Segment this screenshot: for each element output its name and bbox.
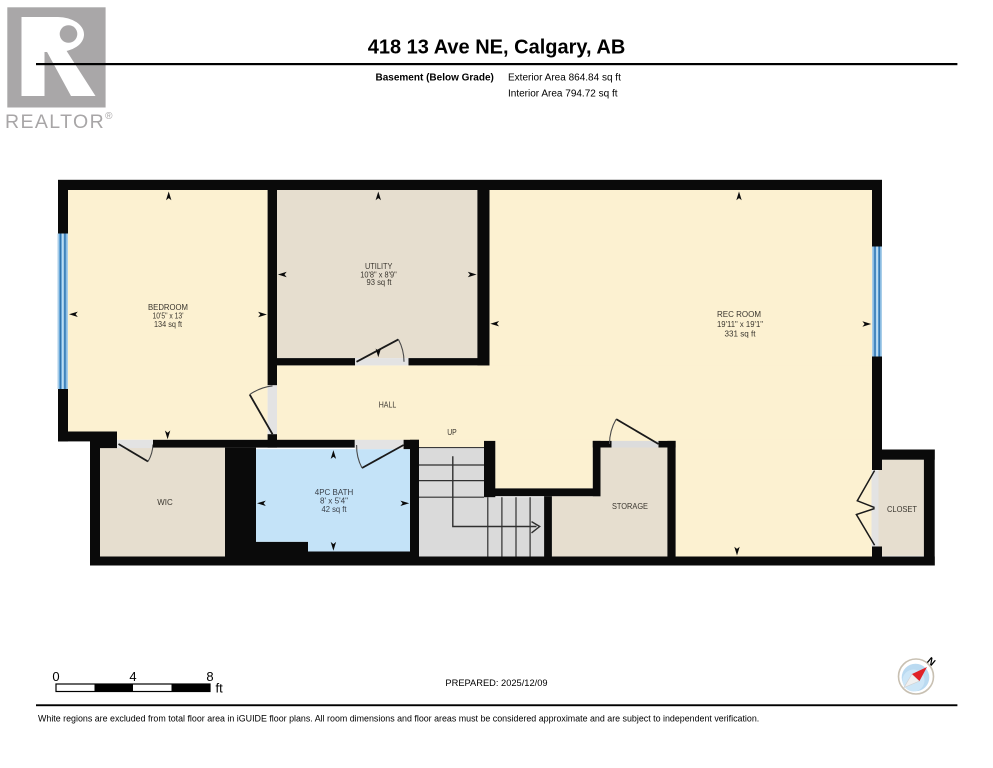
svg-text:HALL: HALL bbox=[379, 401, 397, 410]
svg-text:REC ROOM: REC ROOM bbox=[717, 309, 761, 319]
svg-text:331 sq ft: 331 sq ft bbox=[725, 330, 757, 339]
svg-text:19'11" x 19'1": 19'11" x 19'1" bbox=[717, 320, 763, 329]
svg-text:134 sq ft: 134 sq ft bbox=[154, 320, 183, 329]
svg-text:8: 8 bbox=[206, 669, 213, 684]
svg-text:Basement (Below Grade): Basement (Below Grade) bbox=[376, 73, 494, 84]
svg-text:UP: UP bbox=[447, 428, 457, 437]
svg-text:42 sq ft: 42 sq ft bbox=[322, 505, 348, 514]
svg-text:Interior Area 794.72 sq ft: Interior Area 794.72 sq ft bbox=[508, 89, 618, 100]
svg-text:93 sq ft: 93 sq ft bbox=[367, 278, 393, 287]
svg-text:White regions are excluded fro: White regions are excluded from total fl… bbox=[38, 714, 759, 724]
svg-text:4: 4 bbox=[129, 669, 136, 684]
svg-text:WIC: WIC bbox=[157, 498, 173, 507]
svg-text:PREPARED: 2025/12/09: PREPARED: 2025/12/09 bbox=[445, 678, 547, 688]
svg-text:BEDROOM: BEDROOM bbox=[148, 302, 188, 312]
svg-text:Exterior Area 864.84 sq ft: Exterior Area 864.84 sq ft bbox=[508, 73, 621, 84]
svg-text:CLOSET: CLOSET bbox=[887, 504, 917, 514]
svg-text:UTILITY: UTILITY bbox=[365, 261, 393, 271]
svg-text:4PC BATH: 4PC BATH bbox=[315, 487, 354, 497]
svg-text:418 13 Ave NE, Calgary, AB: 418 13 Ave NE, Calgary, AB bbox=[368, 37, 626, 59]
svg-text:ft: ft bbox=[216, 681, 224, 696]
svg-text:STORAGE: STORAGE bbox=[612, 501, 648, 511]
svg-text:0: 0 bbox=[52, 669, 59, 684]
svg-text:REALTOR®: REALTOR® bbox=[5, 111, 114, 133]
